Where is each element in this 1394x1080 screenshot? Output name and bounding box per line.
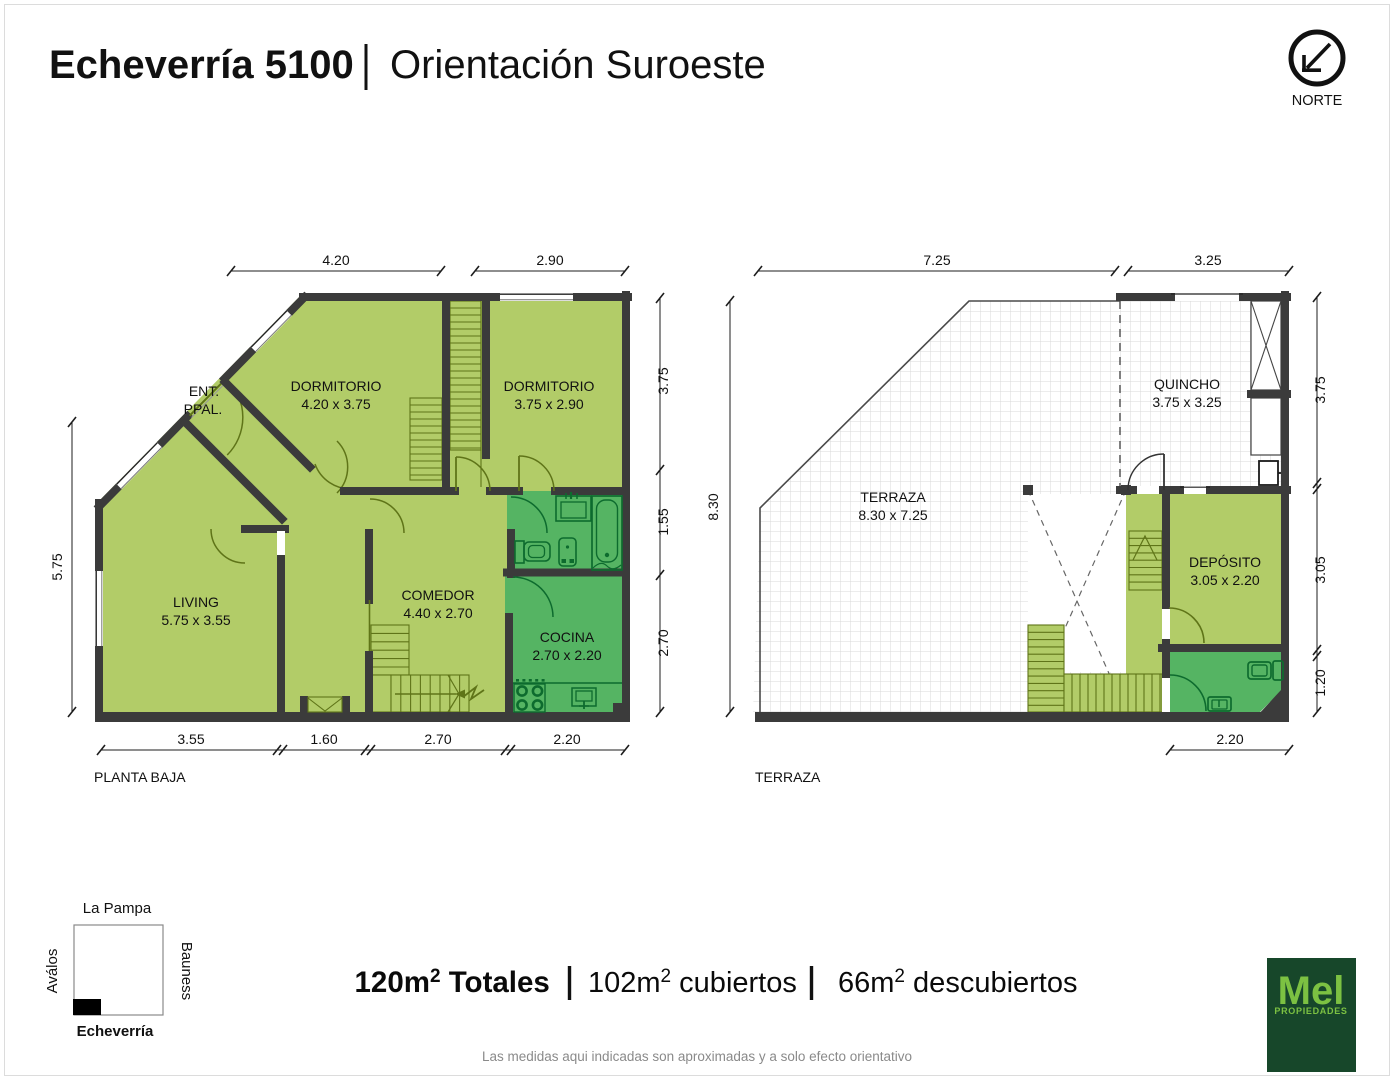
svg-text:ENT.: ENT. — [189, 383, 219, 399]
svg-text:COMEDOR: COMEDOR — [401, 587, 474, 603]
svg-text:2.70: 2.70 — [655, 629, 671, 656]
svg-text:2.70 x 2.20: 2.70 x 2.20 — [532, 647, 601, 663]
svg-text:3.75: 3.75 — [655, 367, 671, 394]
svg-text:3.75 x 3.25: 3.75 x 3.25 — [1152, 394, 1221, 410]
svg-text:LIVING: LIVING — [173, 594, 219, 610]
svg-text:Bauness: Bauness — [178, 942, 195, 1000]
svg-text:3.75 x 2.90: 3.75 x 2.90 — [514, 396, 583, 412]
svg-text:3.75: 3.75 — [1312, 376, 1328, 403]
svg-text:2.90: 2.90 — [536, 252, 563, 268]
svg-text:DEPÓSITO: DEPÓSITO — [1189, 554, 1261, 570]
svg-text:DORMITORIO: DORMITORIO — [291, 378, 382, 394]
svg-text:3.55: 3.55 — [177, 731, 204, 747]
svg-text:TERRAZA: TERRAZA — [755, 769, 821, 785]
svg-text:7.25: 7.25 — [923, 252, 950, 268]
svg-text:DORMITORIO: DORMITORIO — [504, 378, 595, 394]
svg-text:COCINA: COCINA — [540, 629, 595, 645]
svg-text:PPAL.: PPAL. — [184, 401, 223, 417]
svg-text:QUINCHO: QUINCHO — [1154, 376, 1220, 392]
svg-text:4.40 x 2.70: 4.40 x 2.70 — [403, 605, 472, 621]
svg-text:120m2 Totales: 120m2 Totales — [355, 966, 550, 999]
svg-text:5.75 x 3.55: 5.75 x 3.55 — [161, 612, 230, 628]
svg-text:Echeverría 5100: Echeverría 5100 — [49, 43, 354, 87]
svg-text:66m2 descubiertos: 66m2 descubiertos — [838, 966, 1078, 999]
svg-text:2.20: 2.20 — [1216, 731, 1243, 747]
svg-text:2.70: 2.70 — [424, 731, 451, 747]
svg-text:102m2 cubiertos: 102m2 cubiertos — [588, 966, 797, 999]
svg-text:3.25: 3.25 — [1194, 252, 1221, 268]
svg-text:La Pampa: La Pampa — [83, 900, 152, 917]
svg-text:3.05: 3.05 — [1312, 556, 1328, 583]
svg-text:4.20: 4.20 — [322, 252, 349, 268]
svg-text:NORTE: NORTE — [1292, 93, 1343, 109]
svg-text:8.30 x 7.25: 8.30 x 7.25 — [858, 507, 927, 523]
svg-text:8.30: 8.30 — [705, 493, 721, 520]
svg-text:PLANTA BAJA: PLANTA BAJA — [94, 769, 186, 785]
svg-text:Orientación Suroeste: Orientación Suroeste — [390, 43, 766, 87]
svg-text:5.75: 5.75 — [49, 553, 65, 580]
svg-text:1.55: 1.55 — [655, 508, 671, 535]
svg-text:Las medidas aqui indicadas son: Las medidas aqui indicadas son aproximad… — [482, 1049, 912, 1064]
svg-text:3.05 x 2.20: 3.05 x 2.20 — [1190, 572, 1259, 588]
svg-text:1.60: 1.60 — [310, 731, 337, 747]
svg-text:Aválos: Aválos — [44, 949, 61, 994]
svg-text:Echeverría: Echeverría — [77, 1023, 154, 1040]
svg-text:2.20: 2.20 — [553, 731, 580, 747]
svg-text:1.20: 1.20 — [1312, 669, 1328, 696]
svg-text:TERRAZA: TERRAZA — [860, 489, 926, 505]
svg-text:PROPIEDADES: PROPIEDADES — [1274, 1006, 1347, 1016]
svg-text:4.20 x 3.75: 4.20 x 3.75 — [301, 396, 370, 412]
